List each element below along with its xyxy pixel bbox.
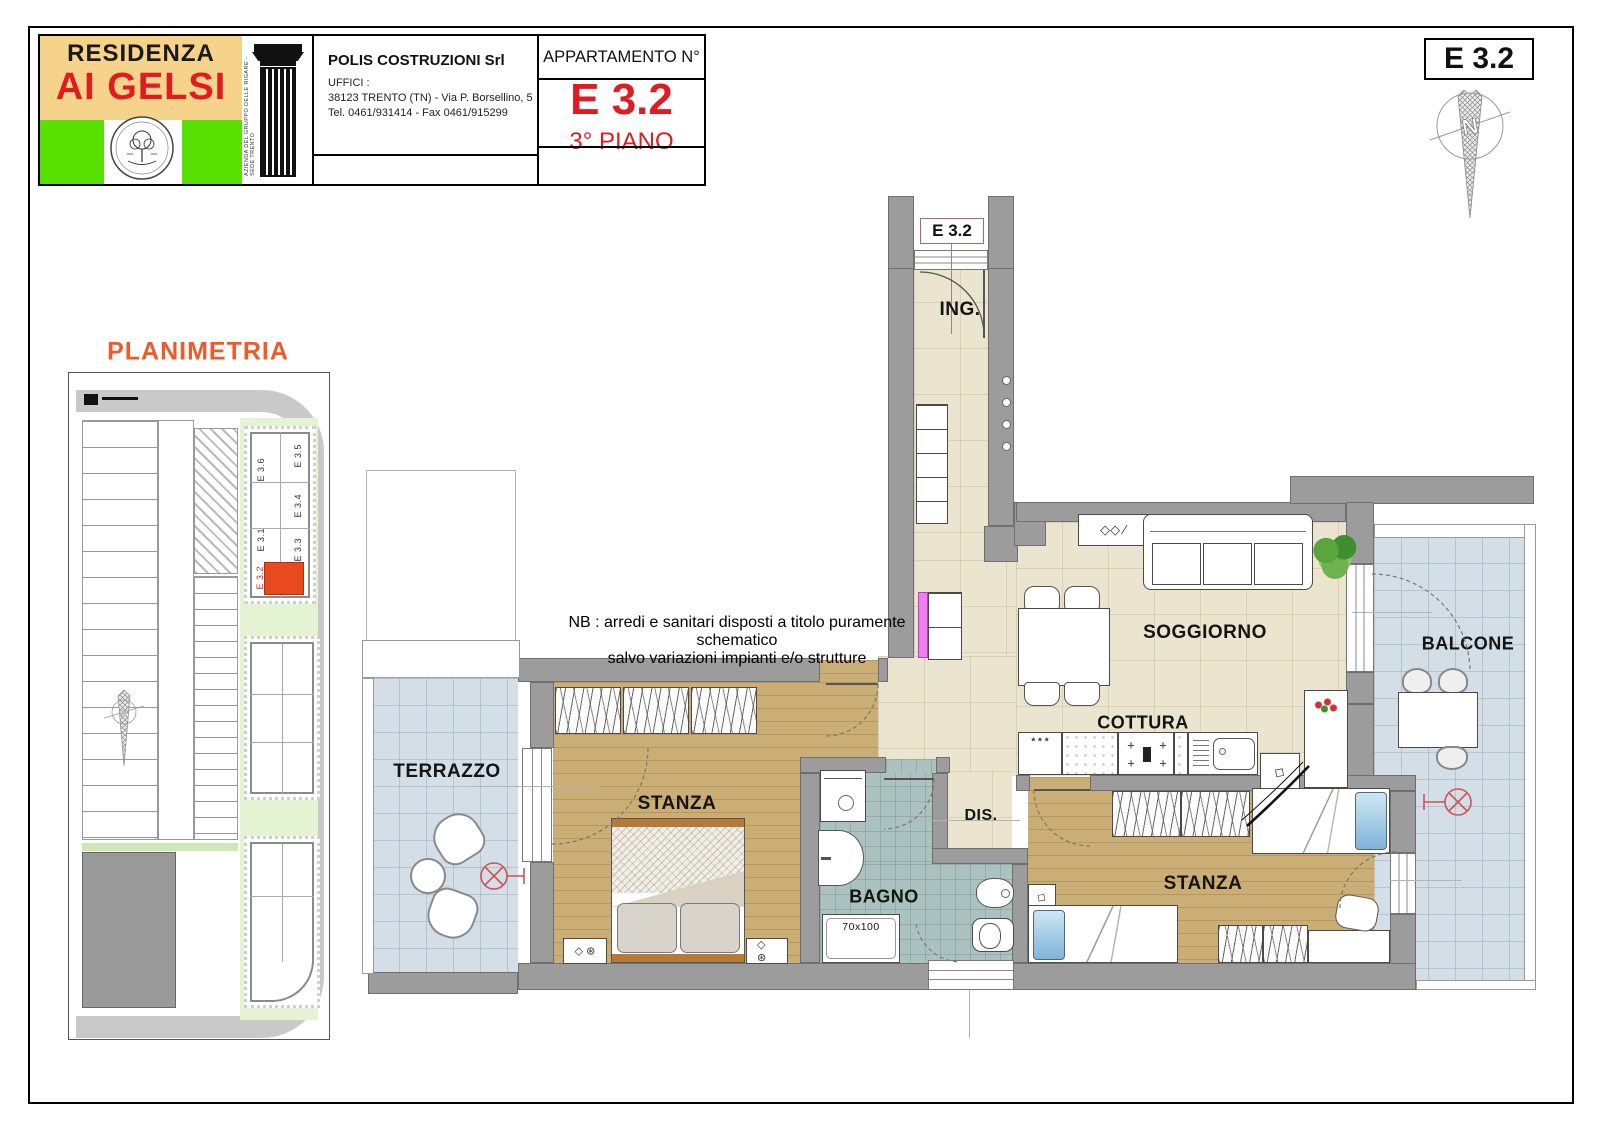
balcony-chair — [1402, 668, 1432, 694]
wardrobe — [1112, 791, 1181, 837]
wall — [888, 268, 914, 658]
logo-banner: RESIDENZA AI GELSI — [40, 36, 242, 120]
unit-label: E 3.1 — [256, 528, 266, 552]
room-label-bagno: BAGNO — [849, 887, 919, 908]
parking-stalls-left — [82, 420, 158, 840]
coat-hook — [1002, 398, 1011, 407]
door-gap-bathroom — [886, 759, 936, 773]
wall — [888, 196, 914, 270]
logo-white-band — [104, 120, 182, 184]
bidet — [976, 878, 1014, 908]
title-block: RESIDENZA AI GELSI AZIENDA DEL GRUPPO DE… — [38, 34, 706, 186]
apartment-divider-1 — [539, 78, 704, 80]
dining-chair — [1064, 682, 1100, 706]
apartment-code: E 3.2 — [539, 75, 704, 125]
column-shaft — [260, 67, 296, 177]
logo-line2: AI GELSI — [40, 66, 242, 109]
wall — [1012, 864, 1028, 963]
sofa-cushion — [1254, 543, 1303, 585]
wall — [800, 773, 820, 963]
burner-icon: + — [1127, 738, 1135, 753]
terrace-upper-court — [366, 470, 516, 642]
wall — [1290, 476, 1534, 504]
balcony-chair — [1436, 746, 1468, 770]
washing-machine-line — [824, 778, 862, 779]
dining-chair — [1024, 682, 1060, 706]
console-shelf: ◇◇ ∕ — [1078, 514, 1148, 546]
company-block: POLIS COSTRUZIONI Srl UFFICI : 38123 TRE… — [314, 36, 537, 184]
wall — [1390, 791, 1416, 853]
note-line-2: salvo variazioni impianti e/o strutture — [555, 650, 919, 668]
sofa-back-line — [1150, 531, 1306, 532]
bed-pillow — [617, 903, 677, 953]
hall-sideboard — [928, 592, 962, 660]
flowers-icon — [1311, 696, 1341, 716]
wall — [1390, 914, 1416, 965]
reference-line — [969, 990, 970, 1038]
wall — [932, 773, 948, 853]
dining-table — [1018, 608, 1110, 686]
reference-line — [470, 786, 600, 787]
column-logo: AZIENDA DEL GRUPPO DELLE RIGARE - SEDE T… — [242, 36, 312, 184]
oven-mark — [1143, 747, 1151, 762]
corner-unit-code: E 3.2 — [1424, 38, 1534, 80]
sofa-cushion — [1203, 543, 1252, 585]
hall-cabinet — [916, 404, 948, 524]
washing-machine-door — [838, 795, 854, 811]
decor-diamond-icon: ◇ — [1271, 762, 1290, 782]
balcony-chair — [1438, 668, 1468, 694]
column-abacus — [254, 44, 302, 52]
kitchen-counter — [1174, 732, 1188, 775]
bed-pillow-blue — [1355, 792, 1387, 850]
wall — [988, 268, 1014, 526]
bed-headboard — [612, 819, 744, 827]
sofa — [1143, 514, 1313, 590]
faucet-icon — [1219, 748, 1226, 755]
shelf-decor-icon: ◇◇ ∕ — [1100, 522, 1126, 538]
company-phone: Tel. 0461/931414 - Fax 0461/915299 — [328, 107, 537, 119]
balcony-rail-top — [1374, 524, 1534, 538]
reference-line — [1352, 612, 1432, 613]
site-entry-bar — [102, 397, 138, 400]
shower-size-label: 70x100 — [842, 921, 879, 933]
nightstand-icons: ◇ ⊛ — [575, 945, 596, 958]
wall — [932, 848, 1028, 864]
unit-label-highlight: E 3.2 — [255, 566, 265, 590]
wall — [1346, 704, 1374, 778]
freezer-stars: * * * — [1031, 737, 1048, 748]
reference-line — [1390, 880, 1462, 881]
wall — [1346, 672, 1374, 704]
nightstand: ◇ ⊛ — [563, 938, 607, 964]
dining-chair — [1024, 586, 1060, 610]
wardrobe — [1263, 925, 1308, 963]
plant-icon — [1310, 530, 1360, 584]
kitchen-end-unit: ◇ — [1260, 753, 1300, 791]
coat-hook — [1002, 420, 1011, 429]
wardrobe — [555, 687, 621, 734]
burner-icon: + — [1159, 756, 1167, 771]
unit-label: E 3.6 — [256, 458, 266, 482]
parking-aisle — [158, 420, 194, 840]
plan-unit-tag: E 3.2 — [920, 218, 984, 244]
wardrobe — [1181, 791, 1250, 837]
washing-machine — [820, 770, 866, 822]
company-address: 38123 TRENTO (TN) - Via P. Borsellino, 5 — [328, 92, 537, 104]
wall — [530, 862, 554, 963]
wall — [1016, 775, 1030, 791]
window-bedroom-2 — [1390, 853, 1416, 914]
building-b-partition — [282, 642, 283, 794]
unit-label: E 3.3 — [293, 538, 303, 562]
bed-pillow — [680, 903, 740, 953]
wardrobe — [1218, 925, 1263, 963]
room-label-terrazzo: TERRAZZO — [393, 761, 500, 783]
site-entry-mark — [84, 394, 98, 405]
desk — [1308, 930, 1390, 963]
kitchen-counter — [1062, 732, 1118, 775]
company-name: POLIS COSTRUZIONI Srl — [328, 52, 537, 69]
wall — [368, 972, 518, 994]
room-label-disimpegno: DIS. — [964, 807, 997, 825]
coat-hook — [1002, 442, 1011, 451]
wall — [988, 196, 1014, 270]
parking-ramp — [194, 428, 238, 574]
tv-cabinet — [1304, 690, 1348, 788]
cooktop: + + + + — [1118, 732, 1174, 775]
terrace-table — [410, 858, 446, 894]
bed-footboard — [612, 954, 744, 962]
company-offices: UFFICI : — [328, 77, 537, 89]
drainer-lines — [1193, 740, 1209, 769]
bed-pillow-blue — [1033, 910, 1065, 960]
site-green-strip — [82, 843, 238, 851]
single-bed — [1028, 905, 1178, 963]
balcony-rail-bottom — [1416, 980, 1536, 990]
room-label-soggiorno: SOGGIORNO — [1143, 622, 1267, 644]
room-label-stanza-2: STANZA — [1164, 873, 1243, 895]
toilet — [972, 918, 1014, 952]
sink-faucet — [821, 857, 831, 860]
planimetria-title: PLANIMETRIA — [107, 338, 289, 367]
drawing-sheet: RESIDENZA AI GELSI AZIENDA DEL GRUPPO DE… — [0, 0, 1600, 1131]
column-caption: AZIENDA DEL GRUPPO DELLE RIGARE - SEDE T… — [244, 50, 256, 176]
unit-label: E 3.5 — [293, 444, 303, 468]
wardrobe — [691, 687, 757, 734]
apartment-divider-2 — [539, 146, 704, 148]
column-echinus — [252, 52, 304, 61]
note-line-1: NB : arredi e sanitari disposti a titolo… — [555, 614, 919, 650]
bidet-drain — [1001, 889, 1010, 898]
double-bed — [611, 818, 745, 963]
kitchen-sink — [1188, 732, 1258, 775]
burner-icon: + — [1159, 738, 1167, 753]
logo-line1: RESIDENZA — [40, 40, 242, 68]
building-c-partition — [282, 842, 283, 962]
wall — [984, 526, 1018, 562]
toilet-seat — [979, 923, 1001, 949]
column-neck — [260, 61, 296, 66]
balcony-table — [1398, 692, 1478, 748]
room-label-balcone: BALCONE — [1422, 634, 1515, 655]
nightstand: ◇ ⊛ — [746, 938, 788, 964]
radiator — [918, 592, 928, 658]
room-label-cottura: COTTURA — [1097, 713, 1189, 734]
company-divider — [314, 154, 537, 156]
wardrobe — [623, 687, 689, 734]
single-bed — [1252, 788, 1390, 854]
unit-label: E 3.4 — [293, 494, 303, 518]
terrace-rail-top — [362, 640, 520, 678]
nightstand-icons: ◇ ⊛ — [757, 938, 777, 964]
wall — [936, 757, 950, 773]
french-door-terrace — [522, 748, 552, 862]
window-bathroom — [928, 960, 1014, 990]
balcony-rail-right — [1524, 524, 1536, 984]
decor-diamond-icon: ◇ — [1034, 889, 1050, 906]
window-living — [1346, 564, 1374, 672]
burner-icon: + — [1127, 756, 1135, 771]
building-d — [82, 852, 176, 1008]
fridge: * * * — [1018, 732, 1062, 775]
dining-chair — [1064, 586, 1100, 610]
room-label-ingresso: ING. — [939, 299, 980, 321]
room-label-stanza-1: STANZA — [638, 793, 717, 815]
apartment-block: APPARTAMENTO N° E 3.2 3° PIANO — [539, 36, 704, 184]
sofa-cushion — [1152, 543, 1201, 585]
wall — [530, 682, 554, 748]
disclaimer-note: NB : arredi e sanitari disposti a titolo… — [555, 614, 919, 668]
apartment-floor: 3° PIANO — [539, 128, 704, 156]
terrace-rail-left — [362, 678, 374, 974]
highlighted-unit — [264, 562, 304, 595]
parking-stalls-right — [194, 576, 238, 840]
coat-hook — [1002, 376, 1011, 385]
apartment-label: APPARTAMENTO N° — [539, 48, 704, 67]
door-gap-bedroom-2 — [1030, 777, 1090, 791]
